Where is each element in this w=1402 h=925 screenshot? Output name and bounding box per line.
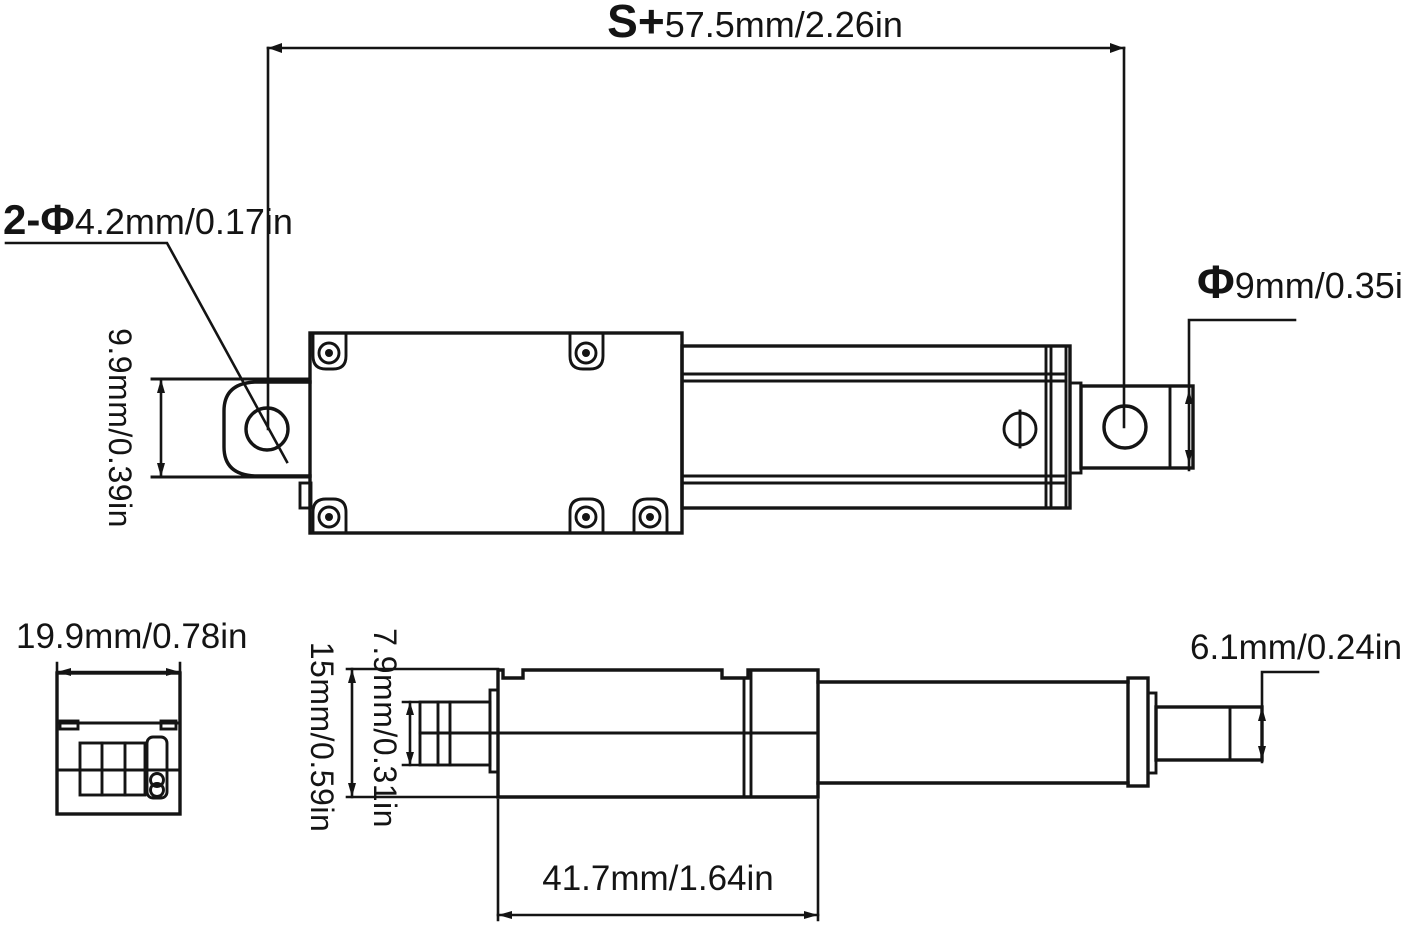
arrowhead bbox=[1258, 746, 1266, 760]
actuator-dimension-diagram: S+57.5mm/2.26in 2-Φ4.2mm/0.17in 9.9mm/0.… bbox=[0, 0, 1402, 925]
leader-line bbox=[1189, 320, 1295, 470]
technical-drawing-canvas: S+57.5mm/2.26in 2-Φ4.2mm/0.17in 9.9mm/0.… bbox=[0, 0, 1402, 925]
rod-outline bbox=[1156, 707, 1262, 760]
arrowhead bbox=[1110, 43, 1124, 53]
clip-tab bbox=[60, 721, 78, 729]
rod-end-diameter-prefix: Φ bbox=[1197, 256, 1235, 308]
arrowhead bbox=[268, 43, 282, 53]
mounting-hole-label: 2-Φ4.2mm/0.17in bbox=[3, 196, 293, 243]
slotted-screw-icon bbox=[1004, 411, 1036, 447]
clevis-height-label: 9.9mm/0.39in bbox=[102, 328, 138, 528]
leader-line bbox=[1262, 672, 1318, 762]
arrowhead bbox=[157, 379, 165, 393]
arrowhead bbox=[406, 752, 414, 765]
tube-rails bbox=[682, 374, 1066, 483]
top-view: S+57.5mm/2.26in 2-Φ4.2mm/0.17in 9.9mm/0.… bbox=[3, 0, 1402, 533]
mounting-hole-value: 4.2mm/0.17in bbox=[75, 201, 293, 242]
rod-end-diameter-value: 9mm/0.35in bbox=[1235, 265, 1402, 306]
gearbox-housing bbox=[300, 333, 682, 533]
rod-end bbox=[1070, 383, 1193, 473]
rod-end-diameter-label: Φ9mm/0.35in bbox=[1197, 256, 1402, 308]
stroke-length-value: 57.5mm/2.26in bbox=[665, 4, 903, 45]
arrowhead bbox=[348, 783, 356, 797]
arrowhead bbox=[498, 911, 512, 919]
screw-icon bbox=[319, 343, 339, 363]
arrowhead bbox=[406, 702, 414, 715]
actuator-tube bbox=[682, 346, 1070, 508]
side-body bbox=[420, 670, 818, 797]
screw-icon bbox=[576, 507, 596, 527]
piston-rod bbox=[1156, 707, 1262, 760]
screw-icon bbox=[640, 507, 660, 527]
side-view: 15mm/0.59in 7.9mm/0.31in bbox=[304, 628, 1402, 920]
side-motor bbox=[420, 690, 498, 772]
rod-diameter-dimension: 6.1mm/0.24in bbox=[1190, 628, 1402, 762]
tube-edges bbox=[818, 682, 1128, 783]
stroke-length-prefix: S+ bbox=[607, 0, 665, 47]
rod-end-diameter-dimension: Φ9mm/0.35in bbox=[1185, 256, 1402, 470]
arrowhead bbox=[1258, 707, 1266, 721]
tube-end-flange bbox=[1128, 678, 1148, 786]
body-width-label: 19.9mm/0.78in bbox=[16, 617, 248, 656]
arrowhead bbox=[157, 463, 165, 477]
screw-icon bbox=[319, 507, 339, 527]
body-height-label: 15mm/0.59in bbox=[304, 642, 340, 832]
screw-icon bbox=[576, 343, 596, 363]
end-view: 19.9mm/0.78in bbox=[16, 617, 248, 814]
arrowhead bbox=[348, 669, 356, 683]
dimension-line bbox=[57, 663, 180, 672]
rod-end-block bbox=[1081, 386, 1193, 468]
stroke-length-label: S+57.5mm/2.26in bbox=[607, 0, 903, 47]
arrowhead bbox=[804, 911, 818, 919]
gearbox-length-dimension: 41.7mm/1.64in bbox=[498, 800, 818, 920]
mounting-hole-callout: 2-Φ4.2mm/0.17in bbox=[3, 196, 293, 462]
housing-outline bbox=[310, 333, 682, 533]
rod-diameter-label: 6.1mm/0.24in bbox=[1190, 628, 1402, 667]
stroke-length-dimension: S+57.5mm/2.26in bbox=[268, 0, 1124, 429]
motor-height-label: 7.9mm/0.31in bbox=[367, 628, 403, 828]
rear-clevis-tab: 9.9mm/0.39in bbox=[102, 328, 310, 528]
side-tube bbox=[818, 678, 1156, 786]
clip-tab bbox=[161, 721, 176, 729]
mounting-hole-prefix: 2-Φ bbox=[3, 196, 75, 243]
gearbox-length-label: 41.7mm/1.64in bbox=[542, 859, 774, 898]
